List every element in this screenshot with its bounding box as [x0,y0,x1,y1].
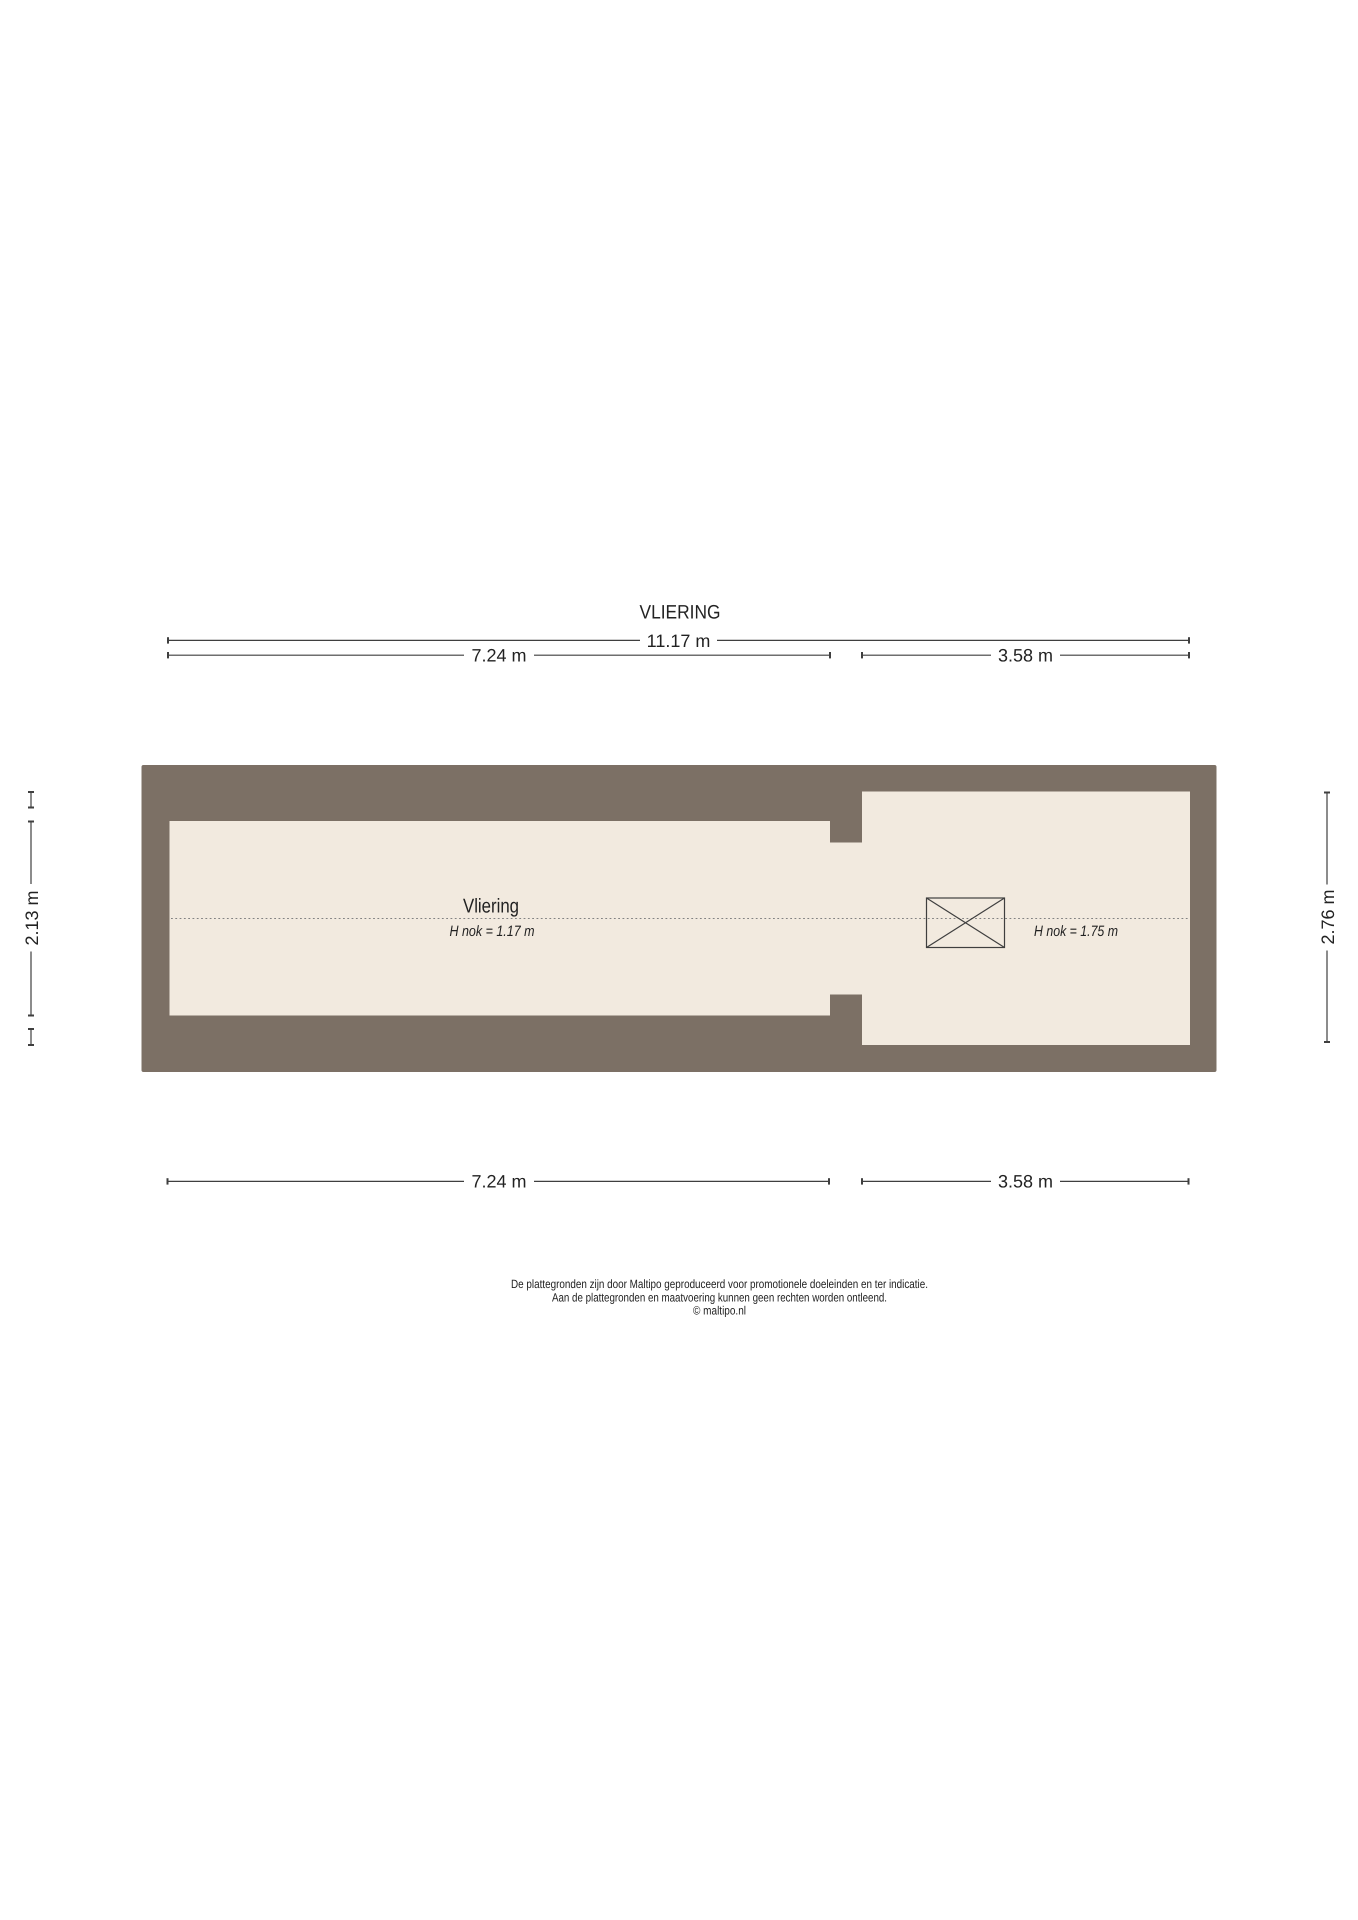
svg-text:Vliering: Vliering [463,896,519,918]
svg-text:H nok = 1.75 m: H nok = 1.75 m [1034,923,1118,940]
svg-text:3.58 m: 3.58 m [998,646,1053,666]
svg-text:© maltipo.nl: © maltipo.nl [693,1304,746,1318]
svg-text:3.58 m: 3.58 m [998,1172,1053,1192]
svg-text:2.76 m: 2.76 m [1318,889,1338,944]
svg-text:De plattegronden zijn door Mal: De plattegronden zijn door Maltipo gepro… [511,1277,928,1291]
svg-text:Aan de plattegronden en maatvo: Aan de plattegronden en maatvoering kunn… [552,1291,887,1305]
svg-text:11.17 m: 11.17 m [647,631,711,651]
svg-text:7.24 m: 7.24 m [471,646,526,666]
svg-text:7.24 m: 7.24 m [471,1172,526,1192]
svg-text:VLIERING: VLIERING [639,602,720,624]
svg-text:H nok = 1.17 m: H nok = 1.17 m [450,923,535,940]
svg-text:2.13 m: 2.13 m [22,890,42,945]
